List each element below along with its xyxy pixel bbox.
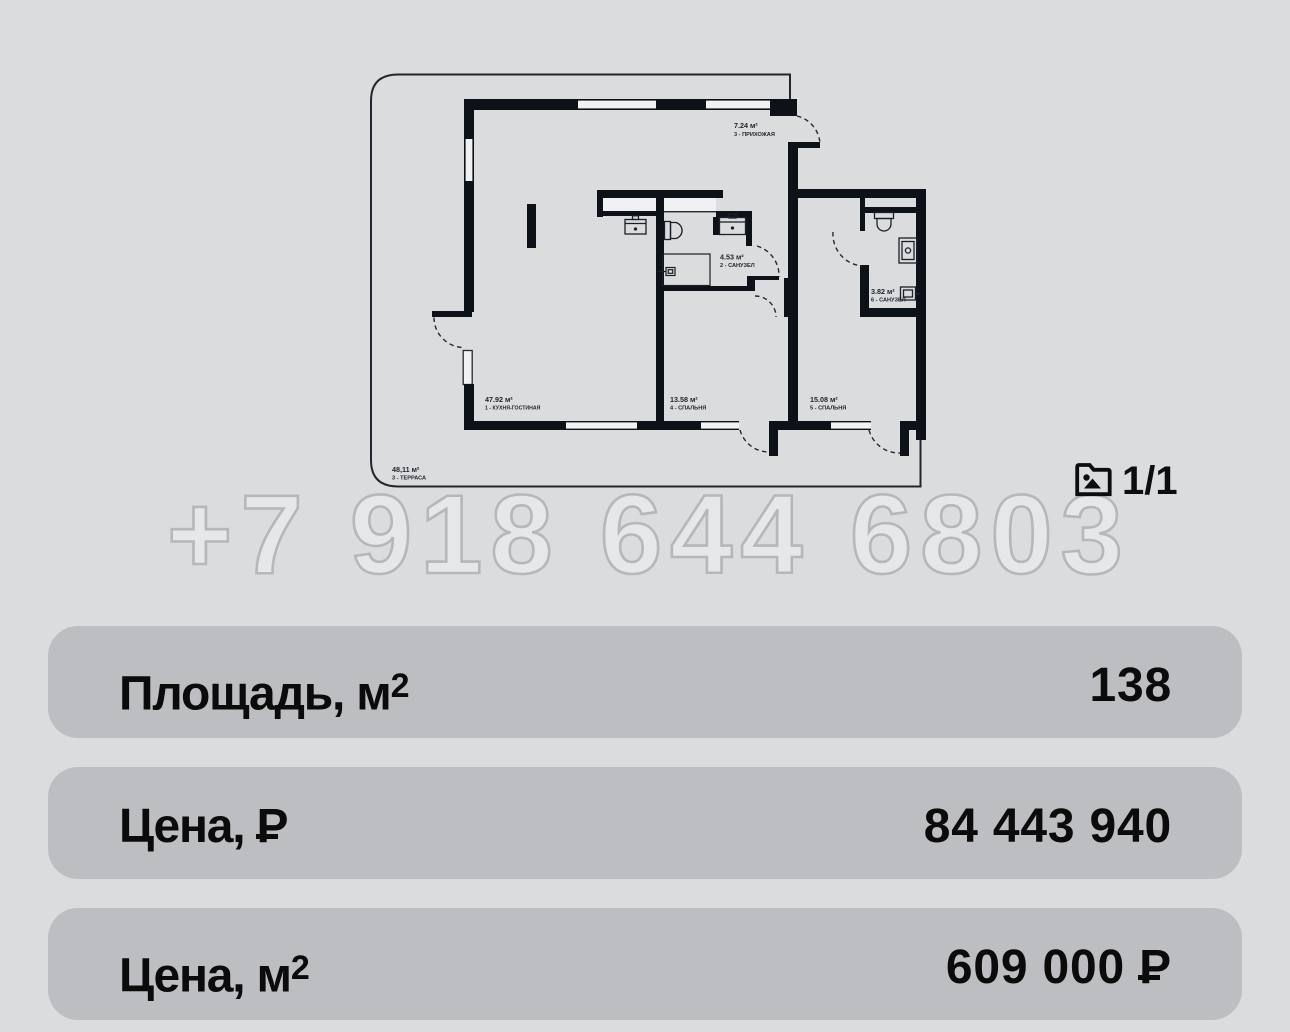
svg-text:13.58 м²: 13.58 м² [670, 395, 698, 404]
svg-text:3 - ПРИХОЖАЯ: 3 - ПРИХОЖАЯ [734, 132, 775, 138]
svg-text:3.82 м²: 3.82 м² [871, 287, 895, 296]
svg-text:4 - СПАЛЬНЯ: 4 - СПАЛЬНЯ [670, 406, 706, 412]
svg-text:47.92 м²: 47.92 м² [485, 395, 513, 404]
svg-text:6 - САНУЗЕЛ: 6 - САНУЗЕЛ [871, 298, 906, 304]
svg-text:5 - СПАЛЬНЯ: 5 - СПАЛЬНЯ [810, 406, 846, 412]
svg-text:48,11 м²: 48,11 м² [392, 465, 420, 474]
svg-text:3 - ТЕРРАСА: 3 - ТЕРРАСА [392, 476, 426, 482]
svg-text:4.53 м²: 4.53 м² [720, 253, 744, 262]
svg-text:7.24 м²: 7.24 м² [734, 121, 758, 130]
svg-text:1 - КУХНЯ-ГОСТИНАЯ: 1 - КУХНЯ-ГОСТИНАЯ [485, 406, 541, 412]
svg-text:2 - САНУЗЕЛ: 2 - САНУЗЕЛ [720, 263, 755, 269]
svg-text:15.08 м²: 15.08 м² [810, 395, 838, 404]
